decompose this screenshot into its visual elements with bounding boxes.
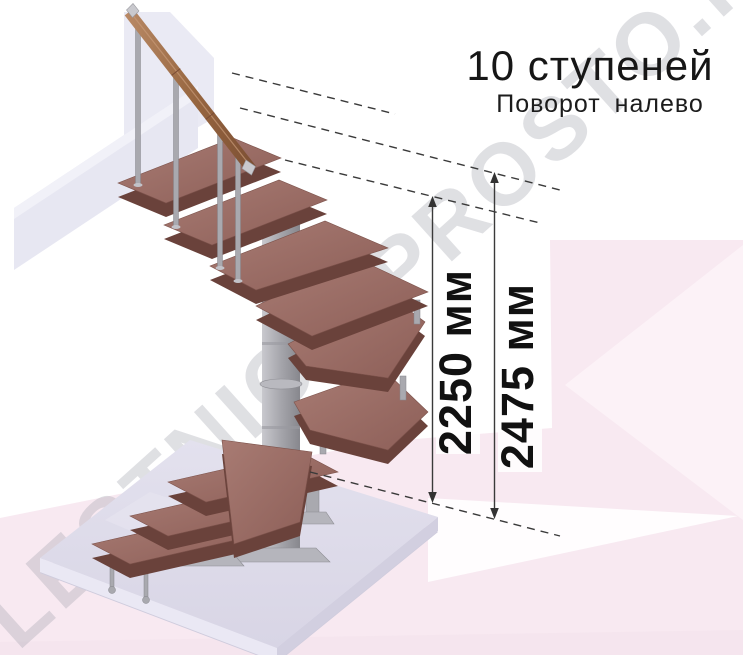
step-leg-1 — [110, 566, 114, 588]
column-joint-2 — [262, 426, 300, 429]
stair-diagram: LESTNICA-PROSTO.RU — [0, 0, 743, 655]
step-leg-2-foot — [143, 597, 150, 604]
stair-diagram-canvas: LESTNICA-PROSTO.RU — [0, 0, 743, 655]
title-turn-direction: Поворот налево — [496, 90, 704, 118]
baluster-4 — [236, 155, 241, 281]
baluster-2-mount — [172, 225, 181, 229]
title-steps-count: 10 ступеней — [466, 42, 713, 89]
baluster-3 — [218, 128, 223, 268]
standoff-step6 — [400, 376, 406, 400]
baluster-1 — [136, 24, 141, 185]
dim-label-inner: 2250 мм — [430, 269, 481, 455]
baluster-2 — [174, 72, 179, 227]
baluster-3-mount — [216, 266, 225, 270]
baluster-4-mount — [234, 279, 243, 283]
step-leg-1-foot — [109, 587, 116, 594]
dim-label-outer: 2475 мм — [492, 283, 543, 469]
column-flange-2 — [260, 379, 302, 389]
baluster-1-mount — [134, 183, 143, 187]
title-block: 10 ступеней Поворот налево — [466, 42, 713, 118]
